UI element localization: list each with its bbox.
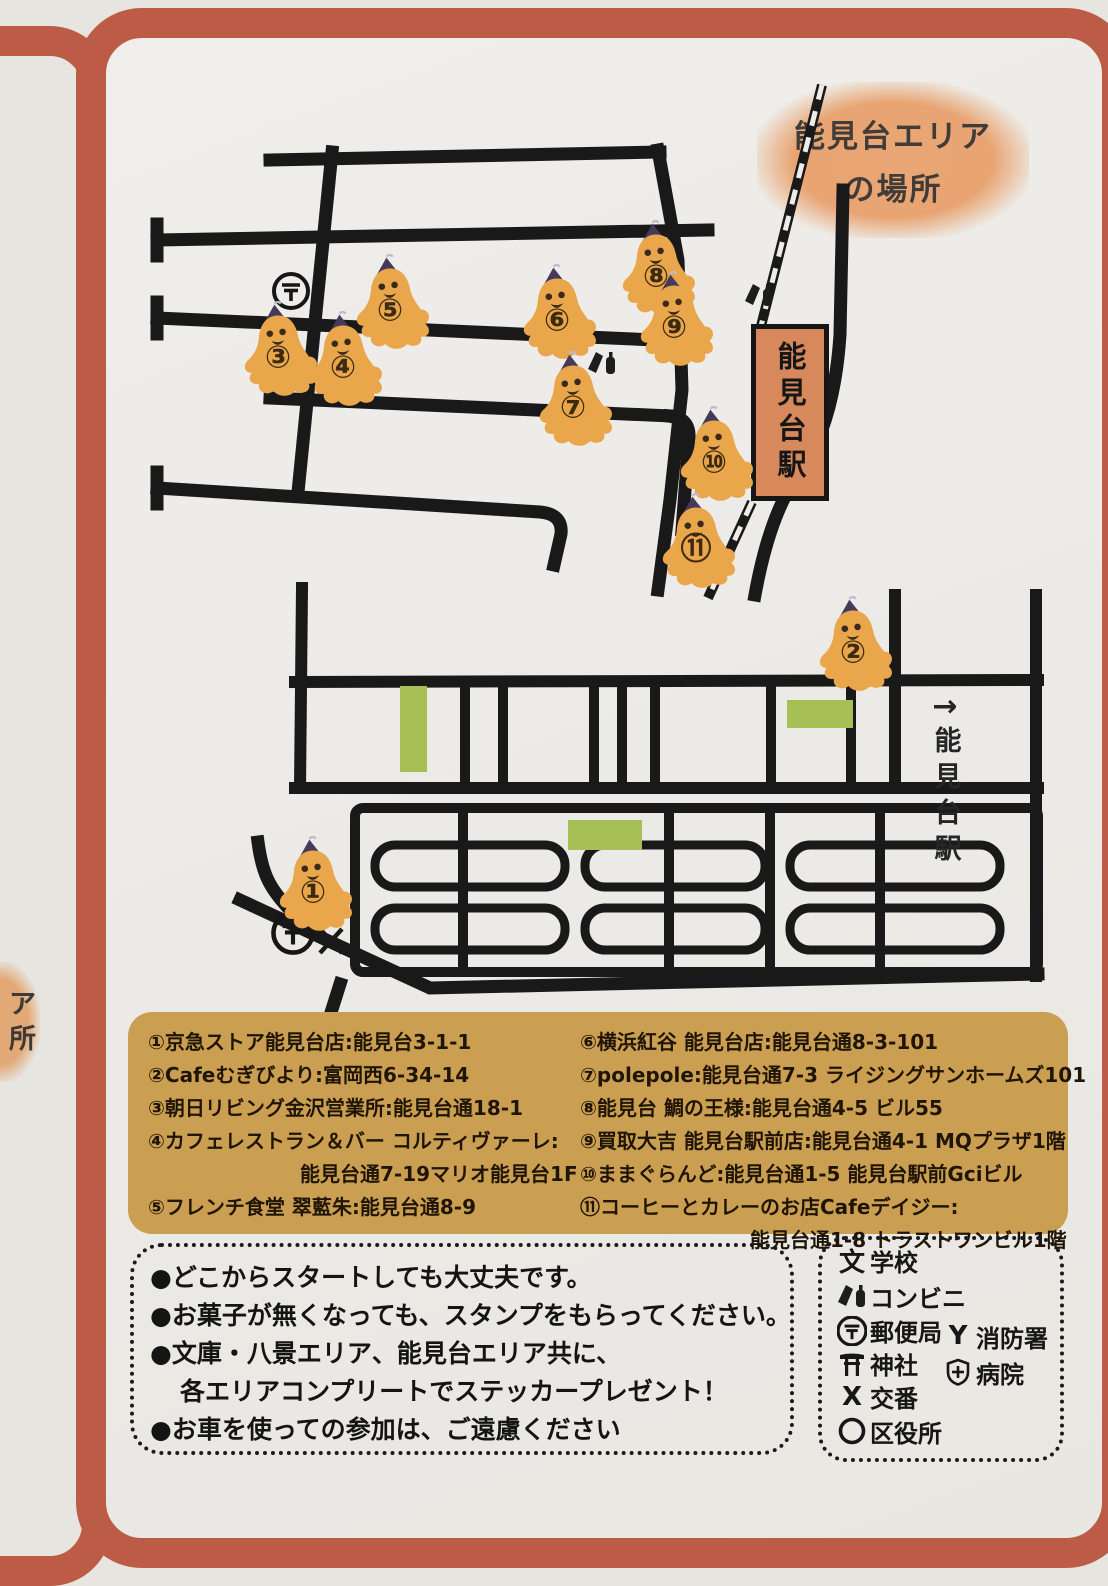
address-entry: ③朝日リビング金沢営業所:能見台通18-1 bbox=[148, 1092, 588, 1125]
address-entry: ⑥横浜紅谷 能見台店:能見台通8-3-101 bbox=[580, 1026, 1060, 1059]
address-entry: ①京急ストア能見台店:能見台3-1-1 bbox=[148, 1026, 588, 1059]
station-direction-label: → 能見台駅 bbox=[922, 692, 968, 870]
address-entry: ⑪コーヒーとカレーのお店Cafeデイジー: bbox=[580, 1191, 1060, 1224]
fire-station-icon: Y bbox=[940, 1321, 976, 1351]
map-marker-5: ⑤ bbox=[344, 254, 436, 354]
address-entry: ②Cafeむぎびより:富岡西6-34-14 bbox=[148, 1059, 588, 1092]
address-list-panel: ①京急ストア能見台店:能見台3-1-1 ②Cafeむぎびより:富岡西6-34-1… bbox=[128, 1012, 1068, 1234]
fragment-char-1: ア bbox=[9, 987, 36, 1022]
hospital-icon bbox=[940, 1358, 976, 1386]
legend-item-hospital: 病院 bbox=[940, 1354, 1048, 1390]
note-item-continuation: 各エリアコンプリートでステッカープレゼント！ bbox=[150, 1373, 774, 1411]
post-office-icon bbox=[834, 1316, 870, 1346]
address-entry: ⑧能見台 鯛の王様:能見台通4-5 ビル55 bbox=[580, 1092, 1060, 1125]
address-entry: ⑤フレンチ食堂 翠藍朱:能見台通8-9 bbox=[148, 1191, 588, 1224]
map-marker-10: ⑩ bbox=[668, 406, 760, 506]
shrine-icon bbox=[834, 1351, 870, 1377]
address-entry: ④カフェレストラン＆バー コルティヴァーレ: bbox=[148, 1125, 588, 1158]
convenience-icon bbox=[745, 284, 772, 306]
note-item: ●お菓子が無くなっても、スタンプをもらってください。 bbox=[150, 1297, 774, 1335]
convenience-icon bbox=[834, 1285, 870, 1308]
note-item: ●どこからスタートしても大丈夫です。 bbox=[150, 1259, 774, 1297]
address-entry: ⑨買取大吉 能見台駅前店:能見台通4-1 MQプラザ1階 bbox=[580, 1125, 1060, 1158]
address-column-1: ①京急ストア能見台店:能見台3-1-1 ②Cafeむぎびより:富岡西6-34-1… bbox=[148, 1026, 588, 1224]
address-entry: ⑦polepole:能見台通7-3 ライジングサンホームズ101 bbox=[580, 1059, 1060, 1092]
police-box-icon: X bbox=[834, 1382, 870, 1412]
map-marker-9: ⑨ bbox=[628, 271, 720, 371]
map-marker-6: ⑥ bbox=[511, 264, 603, 364]
address-entry-continuation: 能見台通7-19マリオ能見台1F bbox=[148, 1158, 588, 1191]
station-direction-text: 能見台駅 bbox=[926, 726, 965, 870]
address-entry: ⑩ままぐらんど:能見台通1-5 能見台駅前Gciビル bbox=[580, 1158, 1060, 1191]
map-marker-7: ⑦ bbox=[527, 351, 619, 451]
legend-column-2: Y 消防署 病院 bbox=[940, 1318, 1048, 1390]
legend-item-fire-station: Y 消防署 bbox=[940, 1318, 1048, 1354]
rules-notes-box: ●どこからスタートしても大丈夫です。 ●お菓子が無くなっても、スタンプをもらって… bbox=[130, 1243, 794, 1455]
fragment-char-2: 所 bbox=[9, 1022, 36, 1057]
address-column-2: ⑥横浜紅谷 能見台店:能見台通8-3-101 ⑦polepole:能見台通7-3… bbox=[580, 1026, 1060, 1257]
map-marker-1: ① bbox=[267, 836, 359, 936]
flyer-photo: { "title": {"line1": "能見台エリア", "line2": … bbox=[0, 0, 1108, 1477]
legend-item-convenience: コンビニ bbox=[834, 1278, 966, 1314]
adjacent-card-title-fragment: ア 所 bbox=[0, 962, 40, 1082]
right-arrow-icon: → bbox=[932, 692, 957, 722]
note-item: ●文庫・八景エリア、能見台エリア共に、 bbox=[150, 1335, 774, 1373]
station-sign: 能見台駅 bbox=[751, 324, 829, 501]
map-legend: 文 学校 コンビニ 郵便局 神社 bbox=[818, 1236, 1064, 1462]
note-item: ●お車を使っての参加は、ご遠慮ください bbox=[150, 1411, 774, 1449]
map-marker-11: ⑪ bbox=[650, 493, 742, 593]
school-icon: 文 bbox=[834, 1242, 870, 1279]
legend-item-school: 文 学校 bbox=[834, 1242, 966, 1278]
map-marker-2: ② bbox=[807, 596, 899, 696]
legend-item-ward-office: 区役所 bbox=[834, 1413, 966, 1449]
ward-office-icon bbox=[834, 1417, 870, 1445]
